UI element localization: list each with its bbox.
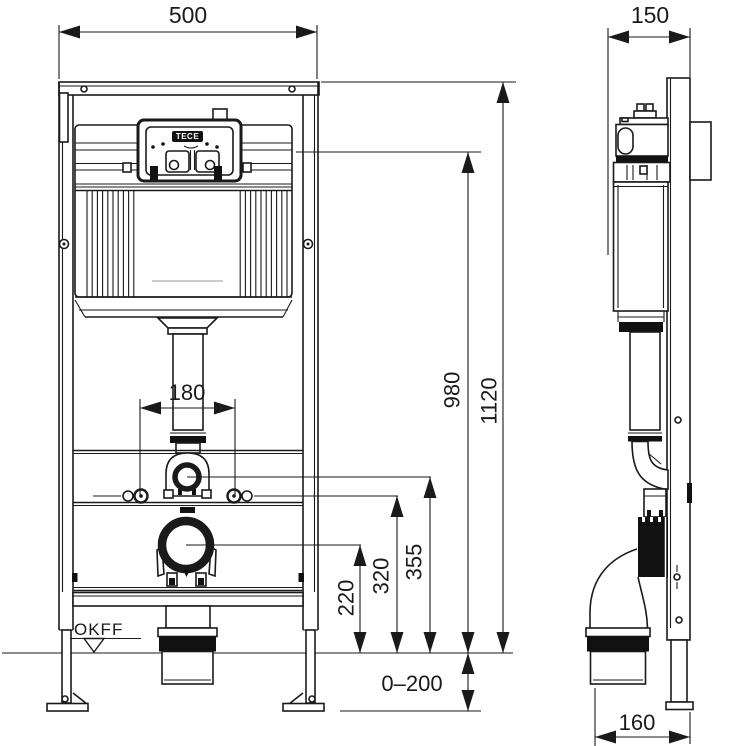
dim-outlet-height-value: 220 xyxy=(334,580,359,617)
wall-bracket-tab xyxy=(60,93,69,142)
wall-rail-bracket xyxy=(690,122,711,180)
actuation-side-pocket xyxy=(618,128,633,154)
cistern-body-side xyxy=(614,182,669,311)
dim-outlet-offset-value: 160 xyxy=(619,710,656,735)
dim-foot-range-value: 0–200 xyxy=(381,671,442,696)
dim-bolt-height-value: 320 xyxy=(369,558,394,595)
vent-tab xyxy=(213,109,227,120)
floor-level-label: OKFF xyxy=(74,620,123,639)
brand-badge: TECE xyxy=(172,131,203,142)
brand-logo: TECE xyxy=(176,132,200,141)
dim-width-value: 500 xyxy=(169,2,207,28)
fill-valve-cap xyxy=(634,111,656,118)
upright-screw-right xyxy=(304,240,313,249)
technical-drawing-page: TECE xyxy=(0,0,746,746)
screw-hole-left xyxy=(81,86,87,92)
wc-frame-dimension-drawing: TECE xyxy=(0,0,746,746)
drain-pipe-down xyxy=(158,606,217,684)
foot-plate-right xyxy=(283,704,324,712)
flush-actuation-unit: TECE xyxy=(138,109,241,181)
flush-bend-housing xyxy=(164,453,211,498)
foot-plate-side xyxy=(666,702,693,710)
latch-clip-left xyxy=(123,163,131,172)
dim-depth-value: 150 xyxy=(631,2,669,28)
dim-bolt-spacing-value: 180 xyxy=(169,380,206,405)
foot-plate-left xyxy=(47,704,88,712)
frame-top-rail xyxy=(59,82,319,95)
screw-hole-right xyxy=(289,86,295,92)
upright-screw-left xyxy=(60,240,69,249)
fixing-bolt-right xyxy=(214,166,222,180)
bottom-rail xyxy=(73,593,303,607)
dim-total-height-value: 1120 xyxy=(477,377,502,424)
wc-connection-bend xyxy=(638,517,668,577)
dim-actuation-height-value: 980 xyxy=(440,372,465,409)
dim-bend-height-value: 355 xyxy=(402,544,427,581)
fixing-bolt-left xyxy=(150,166,158,180)
latch-clip-right xyxy=(243,163,251,172)
cistern-side xyxy=(614,104,671,332)
